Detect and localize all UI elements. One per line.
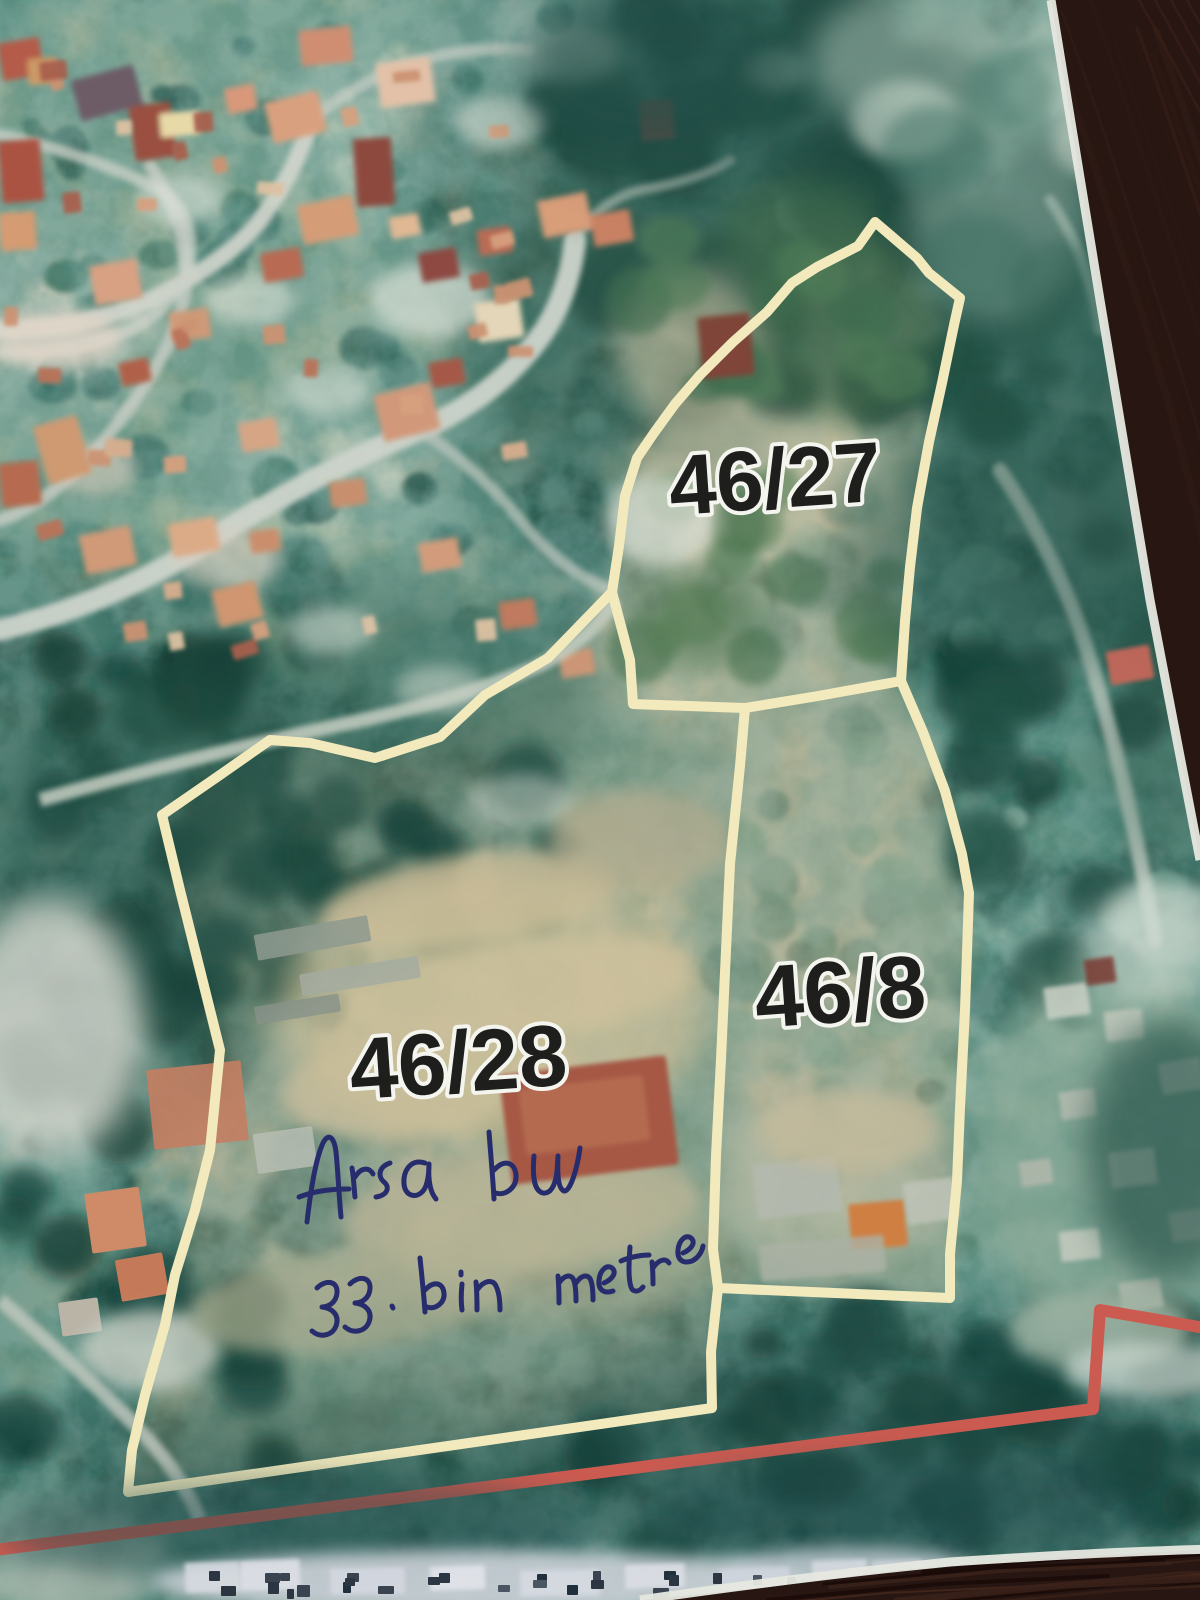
svg-text:46/28: 46/28 xyxy=(346,1007,570,1119)
svg-text:46/8: 46/8 xyxy=(751,936,929,1047)
svg-text:46/27: 46/27 xyxy=(666,425,885,535)
